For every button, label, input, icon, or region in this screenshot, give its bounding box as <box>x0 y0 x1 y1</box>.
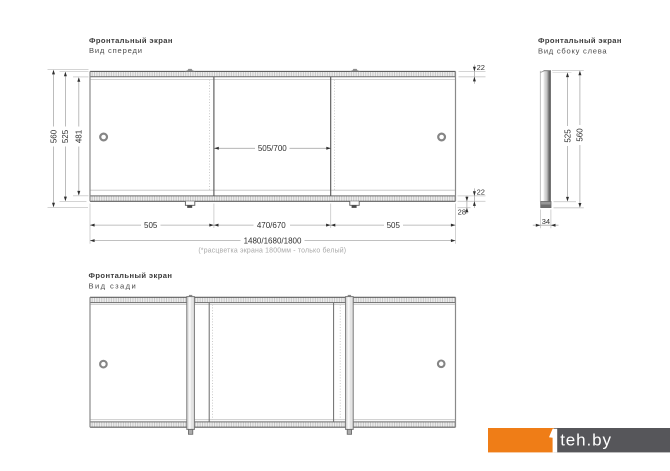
svg-text:470/670: 470/670 <box>257 221 286 230</box>
svg-text:Вид спереди: Вид спереди <box>89 46 143 55</box>
svg-text:22: 22 <box>477 187 485 196</box>
svg-text:560: 560 <box>49 129 58 143</box>
svg-text:teh.by: teh.by <box>560 431 612 450</box>
svg-text:Вид сзади: Вид сзади <box>89 281 138 290</box>
svg-text:525: 525 <box>563 129 572 143</box>
svg-text:560: 560 <box>576 128 585 142</box>
svg-text:Фронтальный экран: Фронтальный экран <box>89 271 173 280</box>
svg-text:481: 481 <box>75 129 84 143</box>
svg-text:1480/1680/1800: 1480/1680/1800 <box>244 236 302 245</box>
svg-text:(*расцветка экрана 1800мм - то: (*расцветка экрана 1800мм - только белый… <box>198 247 346 255</box>
svg-text:Фронтальный экран: Фронтальный экран <box>89 36 173 45</box>
svg-text:525: 525 <box>61 129 70 143</box>
svg-text:22: 22 <box>477 63 485 72</box>
svg-text:34: 34 <box>542 217 550 226</box>
svg-text:Фронтальный экран: Фронтальный экран <box>538 36 622 45</box>
svg-text:505: 505 <box>387 221 401 230</box>
svg-text:505/700: 505/700 <box>258 144 287 153</box>
svg-text:Вид сбоку слева: Вид сбоку слева <box>538 47 607 56</box>
svg-text:505: 505 <box>144 221 158 230</box>
svg-text:28: 28 <box>458 207 466 216</box>
